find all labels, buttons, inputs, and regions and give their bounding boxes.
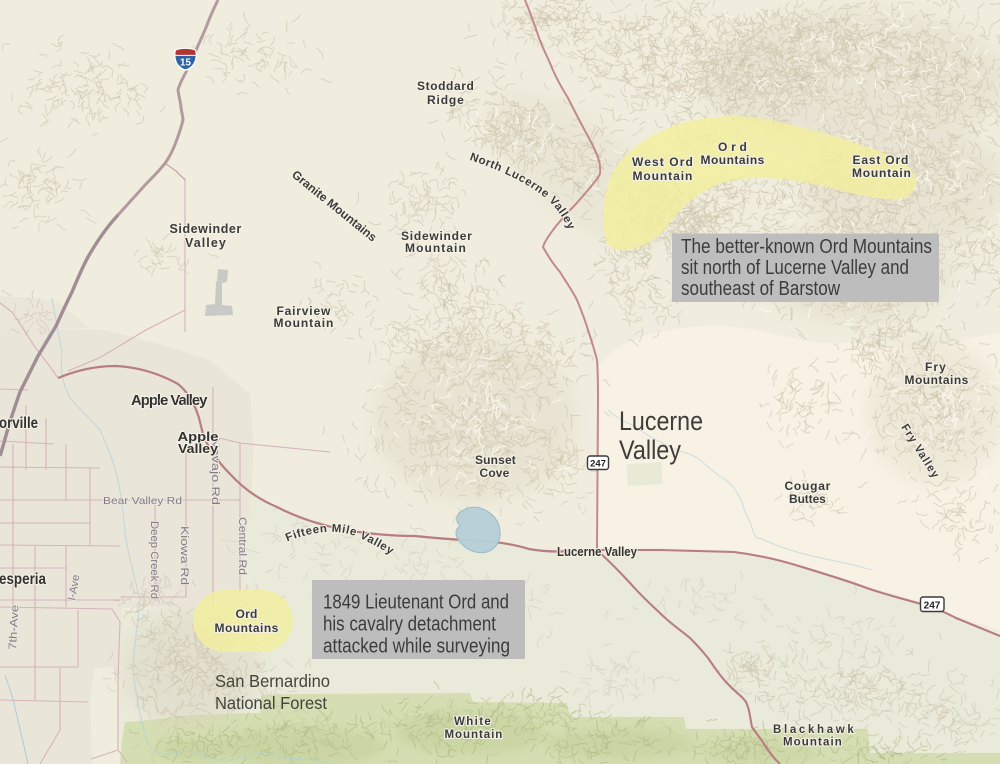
svg-text:Lucerne Valley: Lucerne Valley bbox=[557, 545, 637, 559]
svg-text:sit north of Lucerne Valley an: sit north of Lucerne Valley and bbox=[681, 256, 909, 279]
svg-text:Cove: Cove bbox=[480, 466, 511, 480]
svg-text:Ord: Ord bbox=[236, 607, 259, 621]
svg-text:Mountain: Mountain bbox=[633, 169, 694, 183]
svg-text:Mountain: Mountain bbox=[405, 241, 467, 255]
svg-text:West Ord: West Ord bbox=[632, 155, 694, 169]
svg-text:Apple Valley: Apple Valley bbox=[131, 392, 208, 409]
svg-text:Buttes: Buttes bbox=[789, 492, 827, 506]
svg-text:Mountain: Mountain bbox=[783, 737, 843, 749]
svg-text:15: 15 bbox=[180, 58, 191, 69]
svg-text:Bear Valley Rd: Bear Valley Rd bbox=[103, 495, 182, 507]
svg-text:East Ord: East Ord bbox=[853, 153, 910, 167]
svg-text:Ridge: Ridge bbox=[427, 93, 465, 107]
svg-text:Valley: Valley bbox=[619, 435, 681, 465]
svg-text:Valley: Valley bbox=[178, 441, 219, 456]
svg-text:Valley: Valley bbox=[185, 236, 227, 250]
svg-text:attacked while surveying: attacked while surveying bbox=[323, 635, 510, 658]
svg-text:Mountain: Mountain bbox=[852, 166, 912, 180]
svg-text:Blackhawk: Blackhawk bbox=[773, 724, 855, 736]
svg-text:7th-Ave: 7th-Ave bbox=[7, 605, 21, 651]
svg-text:his cavalry detachment: his cavalry detachment bbox=[323, 613, 496, 636]
svg-text:Sunset: Sunset bbox=[475, 453, 517, 467]
svg-text:esperia: esperia bbox=[0, 571, 46, 588]
svg-text:Kiowa Rd: Kiowa Rd bbox=[178, 526, 190, 585]
svg-text:Mountain: Mountain bbox=[274, 316, 335, 330]
svg-text:Mountains: Mountains bbox=[701, 153, 766, 167]
svg-text:National Forest: National Forest bbox=[215, 693, 327, 713]
svg-text:247: 247 bbox=[590, 459, 606, 470]
svg-text:247: 247 bbox=[924, 601, 941, 612]
svg-text:San Bernardino: San Bernardino bbox=[215, 671, 330, 691]
svg-text:Mountains: Mountains bbox=[905, 373, 970, 387]
svg-text:Central Rd: Central Rd bbox=[236, 517, 248, 575]
svg-text:1849 Lieutenant Ord and: 1849 Lieutenant Ord and bbox=[323, 591, 509, 614]
svg-text:Cougar: Cougar bbox=[785, 479, 832, 493]
svg-text:Mountain: Mountain bbox=[445, 729, 504, 741]
svg-text:Ord: Ord bbox=[718, 140, 748, 154]
svg-text:orville: orville bbox=[0, 415, 38, 432]
svg-text:southeast of Barstow: southeast of Barstow bbox=[681, 277, 840, 300]
svg-text:Fry: Fry bbox=[925, 360, 947, 374]
svg-text:Sidewinder: Sidewinder bbox=[170, 222, 243, 236]
svg-text:Deep Creek Rd: Deep Creek Rd bbox=[148, 521, 160, 599]
svg-text:Mountains: Mountains bbox=[215, 621, 280, 635]
svg-text:Stoddard: Stoddard bbox=[417, 79, 475, 93]
svg-text:The better-known Ord Mountains: The better-known Ord Mountains bbox=[681, 235, 932, 258]
svg-text:White: White bbox=[454, 716, 492, 728]
svg-text:Lucerne: Lucerne bbox=[619, 406, 703, 436]
